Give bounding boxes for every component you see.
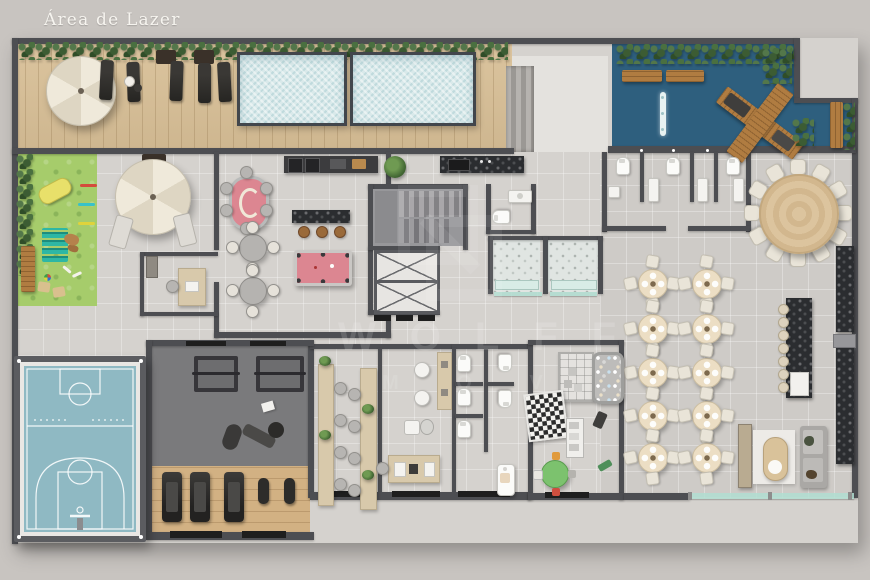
lounge-console: [738, 424, 752, 488]
massage-table: [497, 464, 515, 496]
wall-counter-2: [836, 348, 854, 464]
treadmill: [190, 472, 210, 522]
squat-rack: [194, 356, 238, 392]
game-table-2: [226, 264, 278, 316]
kitchen-counter: [284, 156, 378, 173]
coworking-desk: [360, 368, 377, 510]
lounge-sofa: [800, 426, 827, 488]
sports-court: [14, 356, 146, 542]
banquet-round-table: [751, 166, 843, 258]
watermark-logo: [398, 185, 490, 300]
lawn-bench: [21, 246, 35, 292]
floor-plan-canvas: WOLFF M O V Área de Lazer: [0, 0, 870, 580]
manicure-table: [388, 455, 440, 483]
terrace-bench-east: [830, 102, 843, 148]
games-bar-counter: [292, 210, 350, 223]
lounge-coffee-table: [763, 437, 788, 481]
wall-notch-v: [794, 38, 800, 102]
wall-counter-1: [836, 246, 854, 332]
watermark-tagline: M O V: [382, 372, 569, 395]
squat-rack: [256, 356, 304, 392]
pool-1: [237, 52, 347, 126]
exercise-bike: [284, 478, 295, 504]
toy-shelf: [566, 418, 584, 458]
hair-wash-station: [404, 418, 432, 435]
dining-table: [678, 429, 734, 485]
agility-steps: [42, 228, 68, 262]
dining-table: [624, 429, 680, 485]
giant-chess-mat: [523, 390, 569, 443]
wall-deck-separator: [12, 148, 514, 154]
treadmill: [162, 472, 182, 522]
pool-2: [350, 52, 476, 126]
bench-station: [218, 414, 288, 462]
wall-gym-right: [308, 340, 314, 498]
entrance-steps: [506, 66, 534, 152]
office-desk: [178, 268, 206, 306]
hall-bar-counter: [786, 298, 812, 398]
deck-plant: [384, 156, 406, 178]
page-title: Área de Lazer: [44, 10, 181, 30]
terrace-bench: [666, 70, 704, 82]
kids-table: [541, 460, 569, 488]
bbq-counter: [440, 156, 524, 173]
treadmill: [224, 472, 244, 522]
terrace-fountain: [660, 92, 666, 136]
court-markings: [24, 366, 136, 532]
core-sink: [508, 190, 532, 203]
exercise-bike: [258, 478, 269, 504]
snooker-table: [294, 250, 352, 286]
watermark-brand: WOLFF: [338, 315, 650, 360]
glass-balustrade: [690, 493, 854, 499]
terrace-bench: [622, 70, 662, 82]
